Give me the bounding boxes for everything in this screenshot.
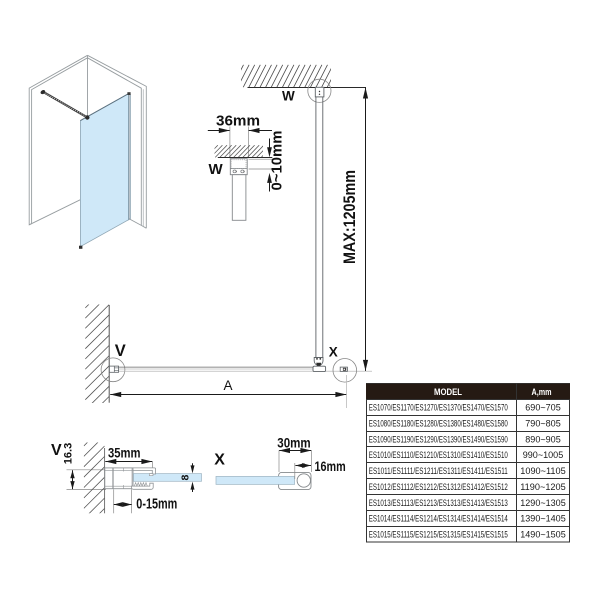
svg-text:V: V [115, 342, 126, 360]
svg-text:A,mm: A,mm [532, 387, 552, 398]
svg-text:30mm: 30mm [277, 435, 310, 451]
svg-text:36mm: 36mm [216, 113, 260, 130]
svg-text:35mm: 35mm [108, 445, 141, 461]
svg-text:890~905: 890~905 [525, 434, 561, 445]
svg-text:ES1013/ES1113/ES1213/ES1313/ES: ES1013/ES1113/ES1213/ES1313/ES1413/ES151… [369, 498, 508, 509]
svg-text:W: W [209, 161, 224, 178]
svg-text:MAX:1205mm: MAX:1205mm [340, 170, 359, 264]
svg-text:ES1080/ES1180/ES1280/ES1380/ES: ES1080/ES1180/ES1280/ES1380/ES1480/ES158… [369, 418, 508, 429]
svg-text:V: V [51, 442, 62, 459]
svg-text:1190~1205: 1190~1205 [520, 482, 566, 493]
svg-text:690~705: 690~705 [525, 403, 561, 414]
svg-text:MODEL: MODEL [434, 387, 462, 398]
svg-text:790~805: 790~805 [525, 418, 561, 429]
svg-text:ES1012/ES1112/ES1212/ES1312/ES: ES1012/ES1112/ES1212/ES1312/ES1412/ES151… [369, 482, 508, 493]
svg-text:X: X [329, 345, 338, 360]
svg-text:X: X [214, 452, 225, 469]
svg-text:16mm: 16mm [315, 459, 346, 474]
svg-text:W: W [282, 88, 295, 103]
svg-text:1090~1105: 1090~1105 [520, 466, 566, 477]
svg-text:ES1015/ES1115/ES1215/ES1315/ES: ES1015/ES1115/ES1215/ES1315/ES1415/ES151… [369, 530, 508, 541]
svg-text:8: 8 [179, 475, 191, 481]
svg-text:16.3: 16.3 [62, 443, 74, 465]
svg-text:1390~1405: 1390~1405 [520, 514, 566, 525]
svg-text:1490~1505: 1490~1505 [520, 530, 566, 541]
svg-text:ES1011/ES1111/ES1211/ES1311/ES: ES1011/ES1111/ES1211/ES1311/ES1411/ES151… [369, 466, 508, 477]
svg-text:0~10mm: 0~10mm [269, 131, 286, 191]
svg-text:0-15mm: 0-15mm [136, 497, 177, 513]
svg-text:ES1070/ES1170/ES1270/ES1370/ES: ES1070/ES1170/ES1270/ES1370/ES1470/ES157… [369, 403, 508, 414]
svg-text:990~1005: 990~1005 [523, 450, 564, 461]
svg-text:ES1090/ES1190/ES1290/ES1390/ES: ES1090/ES1190/ES1290/ES1390/ES1490/ES159… [369, 434, 508, 445]
svg-text:1290~1305: 1290~1305 [520, 498, 566, 509]
svg-text:ES1010/ES1110/ES1210/ES1310/ES: ES1010/ES1110/ES1210/ES1310/ES1410/ES151… [369, 450, 508, 461]
svg-text:ES1014/ES1114/ES1214/ES1314/ES: ES1014/ES1114/ES1214/ES1314/ES1414/ES151… [369, 514, 508, 525]
svg-text:A: A [223, 378, 232, 393]
